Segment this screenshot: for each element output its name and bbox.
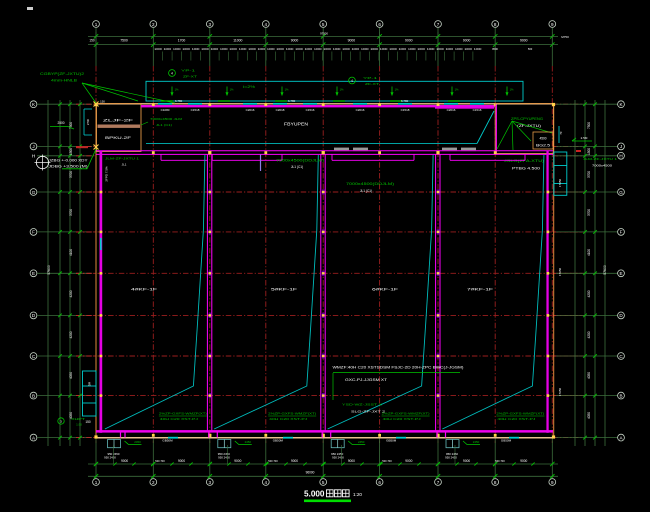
svg-text:J: J: [32, 144, 34, 149]
svg-text:9000: 9000: [234, 459, 241, 463]
svg-text:96000: 96000: [306, 471, 315, 475]
svg-text:1000: 1000: [192, 48, 200, 51]
svg-text:1000: 1000: [464, 48, 472, 51]
svg-text:2%ZP-GXFS-WMZF(XT): 2%ZP-GXFS-WMZF(XT): [496, 412, 544, 416]
svg-text:9000: 9000: [348, 39, 356, 43]
svg-text:JL1 (C1): JL1 (C1): [156, 123, 172, 127]
svg-text:9000: 9000: [405, 39, 413, 43]
svg-text:57600: 57600: [603, 265, 607, 275]
svg-text:9: 9: [551, 480, 554, 485]
svg-text:B: B: [619, 393, 622, 398]
svg-text:9000: 9000: [405, 459, 412, 463]
svg-text:1000: 1000: [323, 48, 331, 51]
svg-text:97500: 97500: [320, 32, 328, 36]
svg-text:1000: 1000: [267, 48, 275, 51]
svg-text:GB50M: GB50M: [386, 439, 397, 443]
svg-text:1000: 1000: [370, 48, 378, 51]
svg-text:6#KF-1F: 6#KF-1F: [372, 287, 399, 292]
svg-text:SLG-ZF-JXT 2: SLG-ZF-JXT 2: [351, 410, 386, 414]
svg-text:4100: 4100: [69, 249, 73, 256]
svg-text:4050: 4050: [587, 412, 591, 419]
svg-text:1000: 1000: [276, 48, 284, 51]
svg-text:17950: 17950: [558, 178, 562, 187]
svg-text:3700: 3700: [587, 209, 591, 216]
svg-text:SH: SH: [88, 381, 92, 386]
svg-text:JL1 (C1): JL1 (C1): [360, 189, 372, 193]
svg-text:1000: 1000: [389, 48, 397, 51]
svg-text:1:20: 1:20: [353, 492, 362, 497]
svg-text:1000: 1000: [173, 48, 181, 51]
svg-text:JDBG +3.500 (M): JDBG +3.500 (M): [49, 164, 88, 168]
svg-text:9000: 9000: [520, 459, 527, 463]
svg-text:1000: 1000: [436, 48, 444, 51]
svg-text:1500: 1500: [587, 148, 591, 155]
svg-text:JZBG +-0.000 XDY: JZBG +-0.000 XDY: [49, 159, 89, 163]
svg-text:3: 3: [209, 22, 212, 27]
svg-text:1000: 1000: [229, 48, 237, 51]
svg-text:5: 5: [322, 480, 325, 485]
svg-text:950 2450: 950 2450: [445, 456, 457, 460]
svg-text:6.780: 6.780: [175, 99, 183, 103]
svg-text:950 2450: 950 2450: [218, 456, 230, 460]
svg-text:C1080: C1080: [161, 108, 170, 112]
svg-text:4: 4: [265, 480, 268, 485]
svg-text:57600: 57600: [47, 265, 51, 275]
svg-text:JL1: JL1: [122, 163, 127, 167]
svg-text:C2018: C2018: [276, 108, 285, 112]
svg-text:2450: 2450: [134, 440, 141, 444]
svg-text:C1518: C1518: [401, 108, 410, 112]
svg-text:C1516: C1516: [473, 108, 482, 112]
svg-text:9000: 9000: [291, 39, 299, 43]
svg-text:ZF-XT: ZF-XT: [365, 82, 379, 86]
svg-text:4: 4: [351, 79, 353, 83]
svg-text:1:50: 1:50: [76, 423, 82, 427]
svg-text:4100: 4100: [587, 249, 591, 256]
svg-text:40H C20 XST-PJ: 40H C20 XST-PJ: [160, 417, 199, 421]
svg-text:JSLG(ZFA-XTU): JSLG(ZFA-XTU): [504, 159, 544, 163]
svg-text:1000: 1000: [474, 48, 482, 51]
svg-text:F: F: [32, 230, 35, 235]
svg-text:1700: 1700: [178, 39, 186, 43]
svg-text:2450: 2450: [358, 440, 365, 444]
svg-text:1000: 1000: [211, 48, 219, 51]
svg-text:11000: 11000: [233, 39, 242, 43]
svg-text:500 700: 500 700: [155, 459, 165, 463]
svg-text:J: J: [620, 144, 622, 149]
svg-text:JLM-ZF-JXTU 1: JLM-ZF-JXTU 1: [583, 157, 618, 161]
svg-text:7000x4500(DDJLM): 7000x4500(DDJLM): [276, 159, 324, 163]
svg-text:500: 500: [528, 47, 533, 51]
svg-text:4200: 4200: [69, 290, 73, 297]
svg-text:YP-1: YP-1: [363, 76, 378, 80]
svg-text:9000: 9000: [178, 459, 185, 463]
svg-text:6.780: 6.780: [288, 99, 296, 103]
svg-text:1000: 1000: [239, 48, 247, 51]
svg-text:7#KF-1F: 7#KF-1F: [467, 287, 494, 292]
svg-text:1000: 1000: [446, 48, 454, 51]
svg-text:ZF-XT: ZF-XT: [183, 75, 197, 79]
svg-text:3700: 3700: [69, 171, 73, 178]
svg-text:1000: 1000: [408, 48, 416, 51]
svg-text:7: 7: [437, 480, 440, 485]
svg-text:40H C20 XST-PJ: 40H C20 XST-PJ: [383, 417, 422, 421]
svg-text:7500: 7500: [120, 39, 128, 43]
svg-text:9000: 9000: [348, 459, 355, 463]
svg-text:950 2450: 950 2450: [218, 452, 230, 456]
svg-text:2450: 2450: [473, 440, 480, 444]
svg-text:5: 5: [322, 22, 325, 27]
svg-text:1000: 1000: [220, 48, 228, 51]
svg-text:YP-1: YP-1: [181, 69, 196, 73]
svg-text:9500: 9500: [492, 47, 498, 51]
svg-text:B: B: [32, 393, 35, 398]
svg-text:6.780: 6.780: [401, 99, 409, 103]
svg-text:500 700: 500 700: [495, 459, 505, 463]
svg-text:9000: 9000: [520, 39, 528, 43]
svg-text:WMZF:40H C20 XSTSDSM FSJC-2D 2: WMZF:40H C20 XSTSDSM FSJC-2D 20H-ZPC BWC…: [333, 366, 464, 370]
svg-text:4200: 4200: [587, 290, 591, 297]
svg-text:BPKU-2F: BPKU-2F: [105, 135, 132, 140]
svg-text:150: 150: [85, 420, 91, 424]
svg-text:150: 150: [89, 39, 95, 43]
svg-text:1: 1: [95, 22, 98, 27]
svg-text:G: G: [619, 190, 623, 195]
svg-text:9000: 9000: [463, 459, 470, 463]
svg-text:GB50M: GB50M: [162, 439, 173, 443]
svg-text:2: 2: [152, 480, 155, 485]
svg-text:1500: 1500: [69, 148, 73, 155]
svg-text:9000: 9000: [463, 39, 471, 43]
svg-text:i=2%: i=2%: [243, 85, 255, 89]
svg-text:G: G: [32, 190, 36, 195]
svg-text:1000: 1000: [380, 48, 388, 51]
svg-text:17950: 17950: [558, 387, 562, 396]
svg-text:JL1 (C1): JL1 (C1): [291, 165, 303, 169]
svg-text:2500: 2500: [57, 121, 64, 125]
svg-text:1000: 1000: [427, 48, 435, 51]
svg-text:C1518: C1518: [191, 108, 200, 112]
svg-text:M750: M750: [561, 35, 569, 39]
svg-text:GB50M: GB50M: [501, 439, 512, 443]
svg-text:7000x4500: 7000x4500: [592, 164, 612, 168]
svg-text:5#KF-1F: 5#KF-1F: [271, 287, 298, 292]
svg-text:1000: 1000: [182, 48, 190, 51]
svg-text:4050: 4050: [69, 372, 73, 379]
svg-text:2%ZP-GXFS-WMZF(XT): 2%ZP-GXFS-WMZF(XT): [159, 412, 207, 416]
svg-text:PTBG 4.500: PTBG 4.500: [512, 167, 540, 171]
svg-text:1000: 1000: [352, 48, 360, 51]
svg-text:150: 150: [100, 100, 105, 104]
svg-text:C1516: C1516: [306, 108, 315, 112]
svg-text:C2016: C2016: [356, 108, 365, 112]
svg-text:C2016: C2016: [246, 108, 255, 112]
svg-text:4: 4: [265, 22, 268, 27]
svg-text:1000: 1000: [164, 48, 172, 51]
svg-text:2450: 2450: [245, 440, 252, 444]
svg-text:1000: 1000: [314, 48, 322, 51]
svg-text:2: 2: [152, 22, 155, 27]
svg-text:E: E: [32, 271, 35, 276]
svg-text:1000: 1000: [295, 48, 303, 51]
svg-text:6: 6: [378, 480, 381, 485]
svg-text:4: 4: [171, 72, 173, 76]
svg-text:XHPT: XHPT: [71, 417, 85, 421]
svg-text:9000: 9000: [291, 459, 298, 463]
svg-text:ZLJF-2F: ZLJF-2F: [103, 118, 134, 123]
svg-text:CGBYP(ZF-JXTU)2: CGBYP(ZF-JXTU)2: [40, 72, 84, 76]
svg-text:4mm-HNLB: 4mm-HNLB: [51, 79, 77, 83]
svg-text:2700: 2700: [86, 118, 90, 125]
svg-text:1000: 1000: [286, 48, 294, 51]
svg-text:7500: 7500: [587, 122, 591, 129]
svg-text:1000: 1000: [258, 48, 266, 51]
svg-text:40H C20 XST-PJ: 40H C20 XST-PJ: [497, 417, 536, 421]
svg-text:1000: 1000: [201, 48, 209, 51]
svg-text:1000: 1000: [154, 48, 162, 51]
svg-text:1000: 1000: [342, 48, 350, 51]
svg-text:1000: 1000: [399, 48, 407, 51]
svg-text:9000: 9000: [121, 459, 128, 463]
svg-text:2%ZP-GXFS-WMZF(XT): 2%ZP-GXFS-WMZF(XT): [382, 412, 430, 416]
svg-text:7: 7: [437, 22, 440, 27]
svg-text:40H C20 XST-PJ: 40H C20 XST-PJ: [269, 417, 308, 421]
svg-text:7F: 7F: [559, 131, 563, 135]
svg-text:500 700: 500 700: [382, 459, 392, 463]
svg-text:H: H: [619, 154, 622, 159]
svg-text:7000x4500 JLM: 7000x4500 JLM: [150, 117, 183, 121]
svg-text:4#KF-1F: 4#KF-1F: [131, 287, 158, 292]
svg-text:E: E: [619, 271, 622, 276]
svg-text:3: 3: [209, 480, 212, 485]
svg-text:JLM-ZF-JXTU 1: JLM-ZF-JXTU 1: [105, 157, 140, 161]
svg-text:FBYUPEN: FBYUPEN: [284, 122, 308, 127]
svg-text:9: 9: [551, 22, 554, 27]
svg-text:2FPD 7.5%: 2FPD 7.5%: [105, 166, 109, 182]
svg-text:F: F: [620, 230, 623, 235]
svg-text:950 2450: 950 2450: [446, 452, 458, 456]
svg-text:2%ZP-GXFS-WMZF(XT): 2%ZP-GXFS-WMZF(XT): [268, 412, 316, 416]
svg-text:C2016: C2016: [447, 108, 456, 112]
svg-text:5.000: 5.000: [304, 490, 325, 499]
svg-text:4200: 4200: [69, 331, 73, 338]
svg-text:BG2.5: BG2.5: [536, 144, 550, 148]
svg-text:2.5M: 2.5M: [581, 136, 588, 140]
svg-text:1000: 1000: [333, 48, 341, 51]
svg-text:4050: 4050: [587, 372, 591, 379]
svg-text:1000: 1000: [455, 48, 463, 51]
svg-text:1000: 1000: [305, 48, 313, 51]
svg-text:950 2450: 950 2450: [332, 456, 344, 460]
svg-text:17950: 17950: [558, 267, 562, 276]
svg-text:3700: 3700: [69, 209, 73, 216]
svg-text:3700: 3700: [587, 171, 591, 178]
svg-text:6: 6: [378, 22, 381, 27]
svg-text:8: 8: [494, 22, 497, 27]
svg-text:H: H: [32, 154, 35, 159]
svg-text:ZPS-CPYUPENG: ZPS-CPYUPENG: [511, 117, 543, 121]
svg-text:1: 1: [95, 480, 98, 485]
svg-text:GB50M: GB50M: [273, 439, 284, 443]
svg-text:8: 8: [494, 480, 497, 485]
svg-text:1000: 1000: [361, 48, 369, 51]
svg-text:4500: 4500: [539, 137, 546, 141]
svg-text:950 2450: 950 2450: [104, 456, 116, 460]
svg-text:1000: 1000: [417, 48, 425, 51]
svg-text:7000x4500(DDJLM): 7000x4500(DDJLM): [346, 182, 394, 186]
svg-text:4200: 4200: [587, 331, 591, 338]
svg-text:GXC-PJ-JJGSM XT: GXC-PJ-JJGSM XT: [345, 378, 387, 382]
svg-text:1000: 1000: [248, 48, 256, 51]
svg-text:500 700: 500 700: [268, 459, 278, 463]
svg-text:YSD-WZ-JSST X: YSD-WZ-JSST X: [342, 403, 382, 407]
